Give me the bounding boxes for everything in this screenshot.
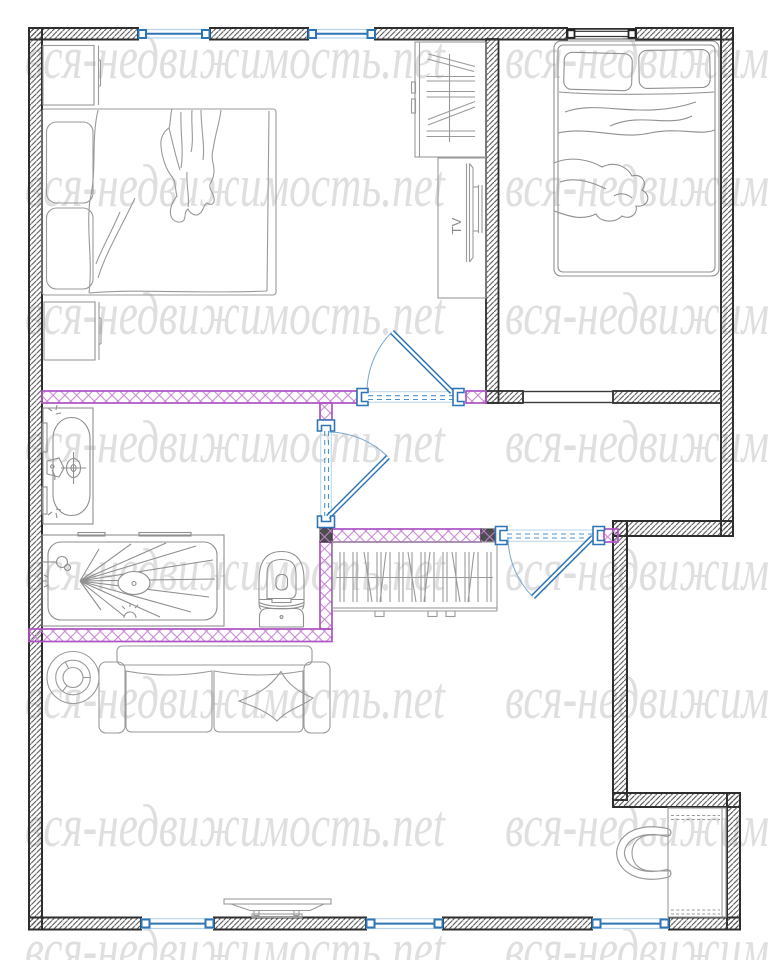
svg-text:TV: TV bbox=[449, 217, 464, 234]
svg-text:вся-недвижимость.net: вся-недвижимость.net bbox=[505, 537, 769, 603]
svg-text:вся-недвижимость.net: вся-недвижимость.net bbox=[25, 793, 446, 859]
svg-text:вся-недвижимость.net: вся-недвижимость.net bbox=[505, 665, 769, 731]
svg-text:вся-недвижимость.net: вся-недвижимость.net bbox=[25, 281, 446, 347]
